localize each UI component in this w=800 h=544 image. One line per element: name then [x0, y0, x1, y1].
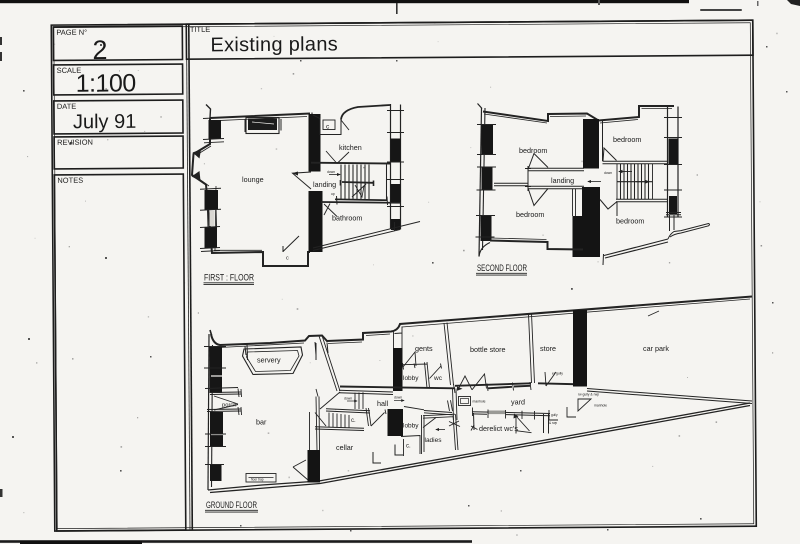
svg-text:lobby: lobby: [403, 423, 419, 430]
svg-text:manhole: manhole: [473, 400, 486, 404]
svg-text:wc: wc: [433, 375, 443, 382]
svg-text:hall: hall: [377, 399, 389, 408]
svg-text:lounge: lounge: [242, 175, 264, 184]
svg-text:servery: servery: [257, 356, 281, 365]
svg-text:down: down: [327, 170, 335, 174]
svg-text:2: 2: [92, 35, 107, 65]
svg-text:floor trap: floor trap: [251, 478, 264, 482]
svg-text:lobby: lobby: [403, 375, 419, 382]
svg-text:FIRST : FLOOR: FIRST : FLOOR: [204, 273, 254, 283]
svg-text:bedroom: bedroom: [613, 135, 641, 144]
svg-text:Existing plans: Existing plans: [210, 33, 338, 56]
svg-text:up: up: [331, 192, 335, 196]
svg-text:yard: yard: [511, 398, 525, 407]
svg-text:SECOND FLOOR: SECOND FLOOR: [477, 263, 527, 273]
svg-text:landing: landing: [551, 176, 574, 185]
svg-text:kitchen: kitchen: [339, 143, 362, 152]
svg-text:bedroom: bedroom: [616, 217, 644, 226]
svg-text:REVISION: REVISION: [57, 138, 93, 147]
svg-text:gents: gents: [415, 344, 433, 353]
svg-text:car park: car park: [643, 344, 669, 353]
svg-text:TITLE: TITLE: [190, 25, 210, 34]
svg-text:landing: landing: [313, 180, 336, 189]
svg-text:cellar: cellar: [336, 443, 354, 452]
svg-text:NOTES: NOTES: [57, 176, 83, 185]
svg-text:rw gully & rwp: rw gully & rwp: [578, 393, 599, 397]
svg-text:c: c: [286, 256, 289, 262]
svg-text:bathroom: bathroom: [332, 214, 362, 223]
svg-text:bedroom: bedroom: [519, 146, 547, 155]
svg-text:gully: gully: [551, 413, 558, 417]
svg-text:store: store: [540, 344, 556, 353]
svg-text:PAGE N°: PAGE N°: [56, 28, 87, 37]
svg-text:DATE: DATE: [57, 102, 77, 111]
svg-text:c.: c.: [351, 418, 356, 424]
svg-text:down: down: [394, 396, 402, 400]
svg-text:down: down: [344, 397, 352, 401]
svg-text:manhole: manhole: [594, 404, 607, 408]
svg-text:ladies: ladies: [425, 437, 443, 444]
svg-text:GROUND FLOOR: GROUND FLOOR: [206, 500, 257, 510]
svg-text:c.: c.: [406, 444, 411, 450]
svg-text:1:100: 1:100: [76, 69, 136, 97]
svg-text:bar: bar: [256, 418, 267, 427]
svg-text:down: down: [604, 171, 612, 175]
svg-text:bottle store: bottle store: [470, 345, 506, 354]
svg-text:er gully: er gully: [552, 372, 563, 376]
svg-text:bedroom: bedroom: [516, 210, 544, 219]
svg-text:July 91: July 91: [73, 111, 137, 133]
svg-text:& rwp: & rwp: [549, 421, 557, 425]
svg-text:derelict wc's: derelict wc's: [479, 424, 518, 433]
svg-text:porch: porch: [222, 403, 237, 409]
